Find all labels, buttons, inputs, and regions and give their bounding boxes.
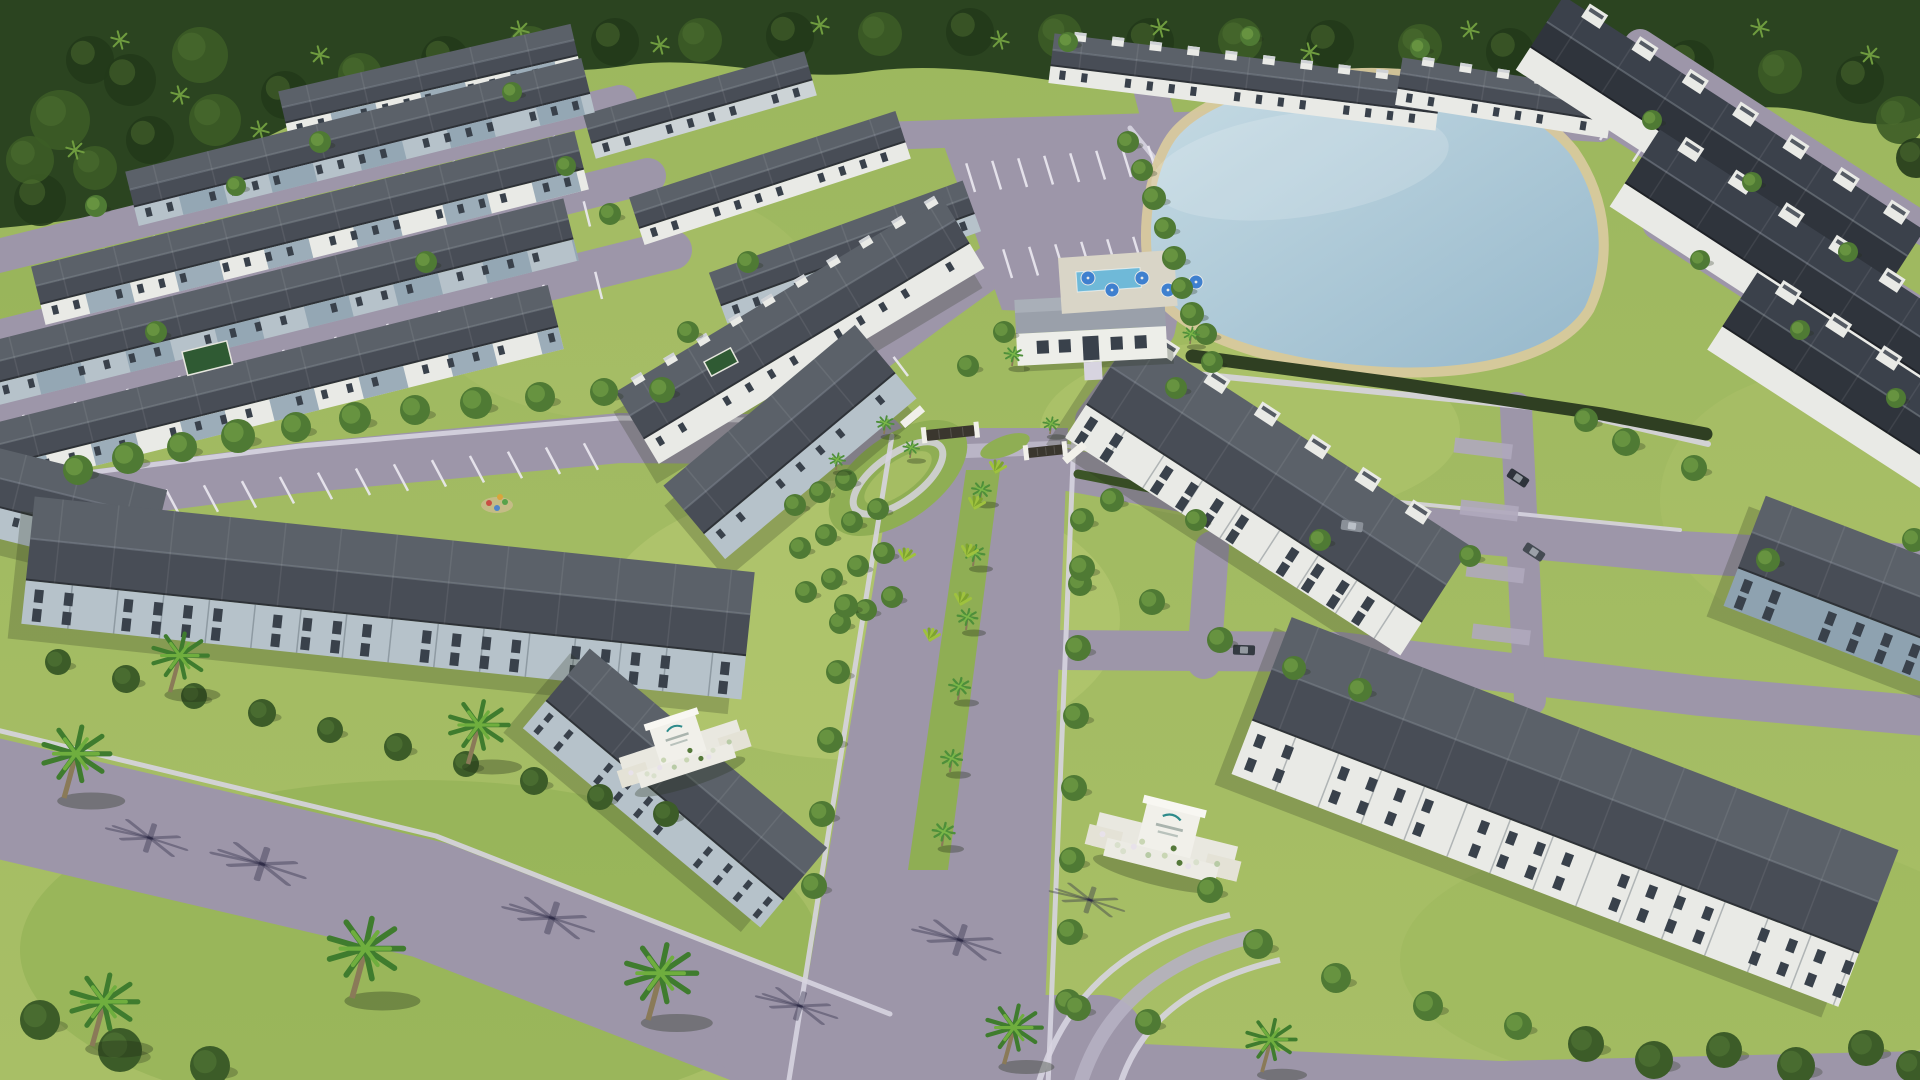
forest-canopy-highlight <box>771 17 795 41</box>
pool-umbrella-center <box>1111 289 1114 292</box>
tree-highlight <box>522 770 538 786</box>
tree-highlight <box>651 380 666 395</box>
window <box>419 649 429 663</box>
tree-highlight <box>558 158 570 170</box>
tree-highlight <box>655 804 670 819</box>
tree-highlight <box>883 588 896 601</box>
forest-canopy-highlight <box>1881 101 1905 125</box>
forest-canopy-highlight <box>11 141 35 165</box>
forest-canopy-highlight <box>1311 25 1335 49</box>
forest-canopy-highlight <box>682 22 704 44</box>
window <box>302 618 312 632</box>
tree-highlight <box>1461 547 1474 560</box>
tree-highlight <box>811 804 826 819</box>
clubhouse-walkway <box>1084 361 1103 380</box>
forest-canopy-highlight <box>36 96 66 126</box>
tree-highlight <box>1067 998 1082 1013</box>
clubhouse-window <box>1058 339 1071 353</box>
tree-highlight <box>1167 379 1180 392</box>
tree-highlight <box>601 205 614 218</box>
tree-highlight <box>66 458 83 475</box>
clubhouse-window <box>1134 335 1147 349</box>
clubhouse-window <box>1110 336 1123 350</box>
pool-umbrella-center <box>1087 277 1090 280</box>
tree-highlight <box>463 390 482 409</box>
tree-highlight <box>1311 531 1324 544</box>
palm-shadow <box>969 566 993 573</box>
window <box>658 674 668 688</box>
pool-umbrella-center <box>1141 277 1144 280</box>
tree-highlight <box>739 253 752 266</box>
tree-highlight <box>1133 161 1146 174</box>
tree-highlight <box>1840 244 1852 256</box>
tree-highlight <box>1324 966 1341 983</box>
tree-highlight <box>193 1050 216 1073</box>
palm-shadow <box>881 434 901 440</box>
window <box>630 652 640 666</box>
palm-shadow <box>954 699 979 706</box>
clubhouse-door <box>1082 336 1099 361</box>
window <box>479 655 489 669</box>
car-glass <box>1348 522 1357 530</box>
window <box>121 618 131 632</box>
tree-highlight <box>403 398 420 415</box>
palm-shadow <box>946 771 971 778</box>
tree-highlight <box>1164 248 1178 262</box>
tree-highlight <box>224 422 244 442</box>
forest-canopy-highlight <box>862 16 884 38</box>
tree-highlight <box>1792 322 1804 334</box>
tree-highlight <box>311 133 324 146</box>
window <box>151 621 161 635</box>
tree-highlight <box>417 253 430 266</box>
window <box>1234 92 1241 102</box>
palm-shadow <box>462 760 522 775</box>
tree-highlight <box>1071 558 1086 573</box>
window <box>481 636 491 650</box>
forest-canopy-highlight <box>596 23 620 47</box>
palm-shadow <box>833 470 852 476</box>
tree-highlight <box>819 730 834 745</box>
forest-canopy-highlight <box>19 179 45 205</box>
tree-highlight <box>1060 34 1072 46</box>
tree-highlight <box>284 415 301 432</box>
tree-highlight <box>1416 994 1433 1011</box>
palm-shadow <box>1047 434 1066 440</box>
window <box>211 627 221 641</box>
tree-highlight <box>1851 1034 1872 1055</box>
window <box>1146 81 1153 91</box>
tree-highlight <box>1576 410 1590 424</box>
tree-highlight <box>1209 630 1224 645</box>
palm-shadow <box>907 458 926 464</box>
tree-highlight <box>875 544 888 557</box>
tree-highlight <box>1571 1030 1592 1051</box>
window <box>123 599 133 613</box>
palm-shadow <box>1187 344 1206 350</box>
tree-highlight <box>817 526 830 539</box>
tree-highlight <box>803 876 818 891</box>
tree-highlight <box>1182 304 1196 318</box>
window <box>213 608 223 622</box>
window <box>1168 84 1175 94</box>
forest-canopy-highlight <box>77 150 99 172</box>
tree-highlight <box>1644 112 1656 124</box>
forest-canopy-highlight <box>1841 61 1865 85</box>
palm-shadow <box>1008 366 1030 372</box>
window <box>511 640 521 654</box>
window <box>1059 70 1066 80</box>
forest-canopy-highlight <box>1762 54 1784 76</box>
tree-highlight <box>1144 188 1158 202</box>
forest-canopy-highlight <box>951 13 975 37</box>
tree-highlight <box>679 323 692 336</box>
playground-equipment <box>486 500 492 506</box>
window <box>451 633 461 647</box>
tree-highlight <box>1246 932 1263 949</box>
tree-highlight <box>1242 28 1254 40</box>
window <box>1386 111 1393 121</box>
aerial-community-render <box>0 0 1920 1080</box>
tree-highlight <box>1067 638 1082 653</box>
window <box>1299 100 1306 110</box>
tree-highlight <box>342 405 361 424</box>
window <box>270 633 280 647</box>
forest-canopy-highlight <box>71 41 95 65</box>
tree-highlight <box>115 445 134 464</box>
tree-highlight <box>1758 550 1772 564</box>
tree-highlight <box>23 1004 46 1027</box>
tree-highlight <box>319 720 334 735</box>
tree-highlight <box>869 500 882 513</box>
tree-highlight <box>1173 279 1186 292</box>
tree-highlight <box>250 702 266 718</box>
window <box>360 643 370 657</box>
tree-highlight <box>959 357 972 370</box>
car-glass <box>1240 646 1248 653</box>
tree-highlight <box>87 197 100 210</box>
window <box>32 608 42 622</box>
tree-highlight <box>1614 431 1630 447</box>
window <box>1408 113 1415 123</box>
scene-svg <box>0 0 1920 1080</box>
tree-highlight <box>1888 390 1900 402</box>
tree-highlight <box>823 570 836 583</box>
tree-highlight <box>786 496 799 509</box>
tree-highlight <box>797 583 810 596</box>
tree-highlight <box>228 178 240 190</box>
window <box>183 605 193 619</box>
window <box>34 589 44 603</box>
window <box>509 659 519 673</box>
tree-highlight <box>1709 1036 1730 1057</box>
window <box>1277 97 1284 107</box>
window <box>660 655 670 669</box>
tree-highlight <box>1156 219 1169 232</box>
tree-highlight <box>1683 458 1698 473</box>
tree-highlight <box>147 323 160 336</box>
window <box>332 621 342 635</box>
tree-highlight <box>1187 511 1200 524</box>
pool-umbrella-center <box>1195 281 1198 284</box>
palm-shadow <box>998 1060 1054 1074</box>
window <box>1190 87 1197 97</box>
tree-highlight <box>114 668 130 684</box>
forest-canopy-highlight <box>1900 142 1920 162</box>
tree-highlight <box>1059 922 1074 937</box>
tree-highlight <box>995 323 1008 336</box>
tree-highlight <box>849 557 862 570</box>
tree-highlight <box>47 652 62 667</box>
tree-highlight <box>791 539 804 552</box>
tree-highlight <box>828 662 842 676</box>
tree-highlight <box>504 84 516 96</box>
tree-highlight <box>386 736 402 752</box>
forest-canopy-highlight <box>194 99 220 125</box>
window <box>153 602 163 616</box>
tree-highlight <box>811 483 824 496</box>
tree-highlight <box>1061 850 1076 865</box>
tree-highlight <box>1692 252 1704 264</box>
window <box>300 637 310 651</box>
palm-shadow <box>938 845 964 853</box>
pool-umbrella-center <box>1167 289 1170 292</box>
window <box>63 593 73 607</box>
tree-highlight <box>589 787 604 802</box>
tree-highlight <box>170 435 187 452</box>
tree-highlight <box>1506 1015 1522 1031</box>
window <box>1255 95 1262 105</box>
window <box>272 614 282 628</box>
tree-highlight <box>843 513 856 526</box>
window <box>421 630 431 644</box>
tree-highlight <box>1119 133 1132 146</box>
window <box>330 640 340 654</box>
window <box>1124 78 1131 88</box>
tree-highlight <box>1638 1045 1660 1067</box>
tree-highlight <box>1904 530 1918 544</box>
window <box>362 624 372 638</box>
tree-highlight <box>1197 325 1210 338</box>
window <box>1081 73 1088 83</box>
window <box>718 681 728 695</box>
playground-equipment <box>494 505 500 511</box>
window <box>61 612 71 626</box>
tree-highlight <box>1284 658 1298 672</box>
forest-canopy-highlight <box>131 121 155 145</box>
tree-highlight <box>1744 174 1756 186</box>
forest-canopy-highlight <box>178 33 206 61</box>
tree-highlight <box>1780 1051 1802 1073</box>
clubhouse-window <box>1036 340 1049 354</box>
window <box>1343 105 1350 115</box>
palm-shadow <box>962 630 986 637</box>
tree-highlight <box>1137 1012 1152 1027</box>
tree-highlight <box>1063 778 1078 793</box>
tree-highlight <box>1199 880 1214 895</box>
window <box>1365 108 1372 118</box>
forest-canopy-highlight <box>1491 33 1515 57</box>
tree-highlight <box>528 385 545 402</box>
playground-equipment <box>497 494 503 500</box>
palm-shadow <box>164 688 220 702</box>
window <box>720 661 730 675</box>
tree-highlight <box>1065 706 1080 721</box>
tree-highlight <box>1412 40 1424 52</box>
tree-highlight <box>1899 1053 1918 1072</box>
tree-highlight <box>1102 490 1116 504</box>
tree-highlight <box>1072 510 1086 524</box>
window <box>449 652 459 666</box>
tree-highlight <box>1203 353 1216 366</box>
tree-highlight <box>592 381 608 397</box>
playground-equipment <box>502 499 508 505</box>
tree-highlight <box>1141 592 1156 607</box>
tree-highlight <box>1350 680 1364 694</box>
forest-canopy-highlight <box>109 59 135 85</box>
tree-highlight <box>836 596 850 610</box>
